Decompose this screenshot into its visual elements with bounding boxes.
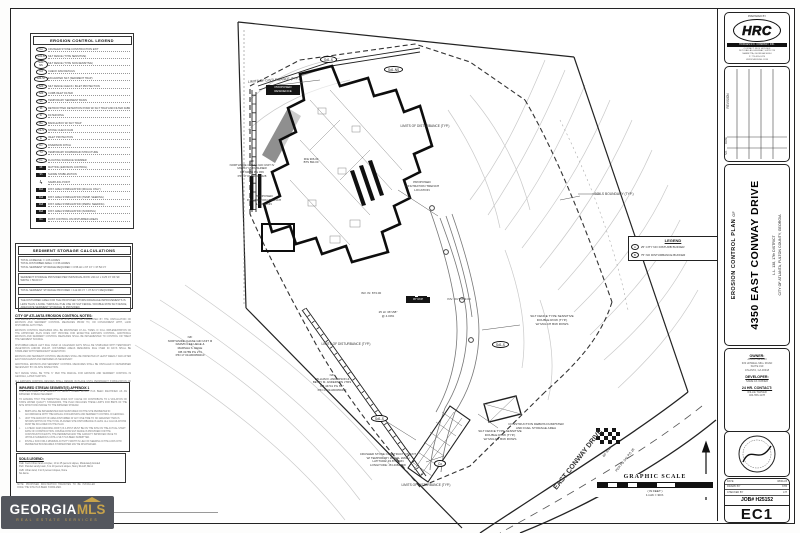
buffer-desc: 75' NO DISTURBANCE BUFFER xyxy=(641,253,685,257)
plan-label: CRUSHED STONE CONSTRUCTION EXIT W/ TEMPO… xyxy=(350,453,426,468)
info-value: 08/01/23 xyxy=(777,480,787,483)
legend-symbol: Ba xyxy=(34,121,48,127)
legend-symbol: Ds4 xyxy=(34,210,48,214)
item-text: INSTALL SOD FOR A MINIMUM ACTIVITY WIDTH… xyxy=(25,441,127,447)
legend-item: RtRETROFITTED DETENTION POND W/ SILT TRA… xyxy=(31,105,133,112)
plan-label: PROPOSED RESIDENCE xyxy=(266,85,300,95)
impaired-item: b.UNIT THE AMOUNT OF AREA DISTURBED AT A… xyxy=(19,418,127,427)
mls-tagline: REAL ESTATE SERVICES xyxy=(16,518,98,522)
erosion-note: EROSION AND SEDIMENT CONTROL MEASURES SH… xyxy=(15,356,131,362)
sq-symbol: Ds4 xyxy=(36,210,46,214)
project-title-block: EROSION CONTROL PLAN OF 4350 EAST CONWAY… xyxy=(724,164,790,346)
sediment-calc-row: TOTAL ACREAGE: ± 1.06 ACRESTOTAL DISTURB… xyxy=(18,256,131,272)
legend-item: Ck-SSTONE CHECK DAM xyxy=(31,127,133,134)
building-footprint xyxy=(262,66,432,262)
legend-item: Ds3DIST. AREA STABILIZATION (PERM. SEEDI… xyxy=(31,201,133,208)
buffer-row: B75' NO DISTURBANCE BUFFER xyxy=(631,252,715,258)
legend-desc: CHECK DAM DETAILS xyxy=(48,70,130,74)
scale-ratio: 1 inch = 30 ft. xyxy=(596,493,714,497)
sediment-calc-row: SEDIMENT STORAGE PROVIDED PER INDIVIDUAL… xyxy=(18,273,131,285)
oval-symbol: Cd xyxy=(36,69,47,75)
soils-boundary-line xyxy=(560,120,628,310)
legend-symbol: ϟ xyxy=(34,180,48,186)
legend-desc: CRUSHED STONE CONSTRUCTION EXIT xyxy=(48,48,130,52)
revision-block: REVISION DATE NO. xyxy=(724,66,790,162)
sediment-line: THE DISTURBED AREA FOR THE PROPOSED STOR… xyxy=(21,299,128,310)
scale-segment xyxy=(628,482,638,488)
sediment-line: TOTAL SEDIMENT STORAGE PROVIDED = 112.00… xyxy=(21,289,128,293)
bolt-symbol: ϟ xyxy=(40,180,43,186)
site-plan-sheet: { "colors": {"accent_gold": "#c7a34b", "… xyxy=(0,0,800,533)
dumpster-area xyxy=(484,396,521,422)
signature xyxy=(743,446,771,462)
firm-line: WWW.HRCENG.COM xyxy=(725,59,789,62)
project-city: CITY OF ATLANTA, FULTON COUNTY, GEORGIA xyxy=(778,214,783,295)
oval-symbol: Co xyxy=(36,47,47,53)
owner-developer-block: OWNER: ATBOF DESIGN333 HOWELL MILL ROADS… xyxy=(724,348,790,432)
oval-symbol: Fs xyxy=(36,158,47,164)
sq-symbol: Ds2 xyxy=(36,196,46,200)
legend-item: DvDIVERSION DITCH xyxy=(31,142,133,149)
soil-line: No dams. xyxy=(19,472,123,475)
info-value: JJT xyxy=(783,491,787,494)
plan-label: LIMITS OF DISTURBANCE (TYP.) xyxy=(388,483,464,487)
legend-desc: SILT FENCE CHECK / INLET PROTECTION xyxy=(48,85,130,89)
graphic-scale-title: GRAPHIC SCALE xyxy=(596,474,714,480)
legend-item: Ds2DIST. AREA STABILIZATION (TEMP. SEEDI… xyxy=(31,194,133,201)
sq-symbol: Ds3 xyxy=(36,203,46,207)
legend-item: ShSHORE STABILIZATION xyxy=(31,172,133,179)
legend-item: ϟSAMPLING POINT xyxy=(31,179,133,186)
georgia-mls-logo: GEORGIAMLS REAL ESTATE SERVICES xyxy=(1,496,114,529)
bmp-code-oval: Sd1-NS xyxy=(384,66,403,73)
firm-contact-lines: CONTACT: RICK HODGES2470 DALLAS HIGHWAY,… xyxy=(725,48,789,63)
legend-symbol: Dv xyxy=(34,143,48,149)
legend-symbol: Sh xyxy=(34,173,48,177)
scale-segment xyxy=(597,482,608,488)
atlanta-erosion-notes: CITY OF ATLANTA EROSION CONTROL NOTES: T… xyxy=(15,312,131,389)
buffer-row: A25' CITY NO DISTURB BUFFER xyxy=(631,244,715,250)
legend-symbol: Sd2-ST xyxy=(34,76,48,82)
legend-desc: SILT FENCE (TYPE NON-SENSITIVE) xyxy=(48,62,130,66)
legend-symbol: Du xyxy=(34,218,48,222)
project-title: 4350 EAST CONWAY DRIVE xyxy=(749,180,761,329)
plan-label: N/F NORTHSIDE CHASE GID UNIT IV MARCY M.… xyxy=(220,160,284,178)
job-info-block: DATE08/01/23DRAWN BYKTBCHECKED BYJJT JOB… xyxy=(724,478,790,523)
sq-symbol: Ds1 xyxy=(36,188,46,192)
buffer-legend-title: LEGEND xyxy=(631,238,715,243)
contact-lines: WILLIE TARVER404-556-1178 xyxy=(725,391,789,398)
buffer-desc: 25' CITY NO DISTURB BUFFER xyxy=(641,245,685,249)
item-text: UNIT THE AMOUNT OF AREA DISTURBED AT ANY… xyxy=(25,418,127,427)
impaired-item: d.INSTALL SOD FOR A MINIMUM ACTIVITY WID… xyxy=(19,441,127,447)
preparer-block: PREPARED BY HRC HODGES R.C. COMPANY, INC… xyxy=(724,12,790,64)
legend-item: CdCHECK DAM DETAILS xyxy=(31,68,133,75)
legend-desc: INLET PROTECTION xyxy=(48,136,130,140)
item-text: A CHECK DAM (DRAINING FIRST) IS A POST M… xyxy=(25,428,127,440)
owner-lines: ATBOF DESIGN333 HOWELL MILL ROADSUITE 31… xyxy=(725,358,789,372)
sq-symbol: Sh xyxy=(36,173,46,177)
bmp-code-oval: Co xyxy=(434,460,446,467)
revision-label: REVISION xyxy=(726,91,730,111)
impaired-item: c.A CHECK DAM (DRAINING FIRST) IS A POST… xyxy=(19,428,127,440)
legend-item: TdTEMPORARY DOWNDRAIN STRUCTURE xyxy=(31,149,133,156)
impaired-title: IMPAIRED STREAM SEGMENT(S) APPENDIX 1 xyxy=(19,386,127,390)
plan-label: SILT FENCE TYPE SENSITIVE DOUBLE ROW (TY… xyxy=(520,315,584,327)
legend-desc: TEMPORARY DOWNDRAIN STRUCTURE xyxy=(48,151,130,155)
job-number: JOB# H25152 xyxy=(725,496,789,505)
oval-symbol: Ip xyxy=(36,136,47,142)
hrc-logo: HRC xyxy=(733,19,781,42)
legend-desc: EXCAVATED SILT (SEDIMENT TRAP) xyxy=(48,77,130,81)
info-value: KTB xyxy=(782,485,787,488)
legend-symbol: Co xyxy=(34,47,48,53)
legend-desc: FLOATING SURFACE SKIMMER xyxy=(48,159,130,163)
legend-item: Sd3SILT FENCE CHECK / INLET PROTECTION xyxy=(31,83,133,90)
firm-company: HODGES R.C. COMPANY, INC. xyxy=(727,43,787,47)
sediment-calc-row: TOTAL SEDIMENT STORAGE PROVIDED = 112.00… xyxy=(18,287,131,296)
plan-label: LIMITS OF DISTURBANCE (TYP.) xyxy=(310,342,382,346)
legend-item: Sd2-STEXCAVATED SILT (SEDIMENT TRAP) xyxy=(31,76,133,83)
sediment-line: TOTAL SEDIMENT STORAGE REQUIRED = 0.56 A… xyxy=(21,266,128,270)
legend-symbol: Sd1-NS xyxy=(34,60,48,69)
revision-date-label: DATE xyxy=(725,137,728,144)
plan-label: SILT FENCE TYPE SENSITIVE DOUBLE ROW (TY… xyxy=(468,430,532,442)
revision-no-label: NO. xyxy=(725,150,728,155)
erosion-note: ADDITIONAL EROSION AND SEDIMENT CONTROL … xyxy=(15,364,131,370)
sediment-calc-row: THE DISTURBED AREA FOR THE PROPOSED STOR… xyxy=(18,297,131,313)
sq-symbol: Mt xyxy=(36,166,46,170)
watermark-rule xyxy=(114,512,218,513)
oval-symbol: Rt xyxy=(36,106,47,112)
plan-label: SOILS BOUNDARY (TYP.) xyxy=(578,192,650,196)
legend-symbol: Ds1 xyxy=(34,188,48,192)
plan-label: LIMITS OF DISTURBANCE (TYP.) xyxy=(392,124,458,128)
prepared-by-label: PREPARED BY xyxy=(725,15,789,18)
roof-icon xyxy=(83,497,101,502)
scale-bar xyxy=(596,482,714,488)
buffer-code: B xyxy=(631,252,639,258)
info-label: DRAWN BY xyxy=(727,485,740,488)
bmp-code-oval: Sd1-S xyxy=(371,415,388,422)
sq-symbol: Du xyxy=(36,218,46,222)
oval-symbol: Td xyxy=(36,150,47,156)
buffer-code: A xyxy=(631,244,639,250)
bmp-code-oval: Sd1-S xyxy=(320,56,337,63)
developer-lines: SAME AS OWNER xyxy=(725,380,789,384)
legend-item: Ds4DIST. AREA STABILIZATION (SODDING) xyxy=(31,209,133,216)
legend-item: BaBAFFLE BOX W/ SILT TRAP xyxy=(31,120,133,127)
erosion-note: THE ESCAPE OF SEDIMENT FROM THE SITE SHA… xyxy=(15,319,131,328)
legend-desc: BAFFLE BOX W/ SILT TRAP xyxy=(48,122,130,126)
legend-symbol: Fs xyxy=(34,158,48,164)
scale-segment xyxy=(608,482,618,488)
scale-segment xyxy=(638,482,657,488)
hrc-logo-text: HRC xyxy=(742,23,772,38)
oval-symbol: Sd4 xyxy=(36,91,47,97)
scale-segment xyxy=(676,482,713,488)
erosion-note: SILT FENCE SHALL BE TYPE 'C' PER THE MAN… xyxy=(15,373,131,379)
legend-desc: SILT FENCE (TYPE SENSITIVE) xyxy=(48,55,130,59)
erosion-note: EROSION CONTROL MEASURES WILL BE MAINTAI… xyxy=(15,330,131,342)
oval-symbol: Fr xyxy=(36,113,47,119)
impaired-item: a.BMPS WILL BE IMPLEMENTED AND MAINTAINE… xyxy=(19,411,127,417)
legend-items: CoCRUSHED STONE CONSTRUCTION EXITSd1-SSI… xyxy=(31,46,133,223)
legend-symbol: Sd3 xyxy=(34,84,48,90)
oval-symbol: Ck-S xyxy=(36,128,47,134)
developer-line: SAME AS OWNER xyxy=(725,380,789,384)
legend-symbol: Td xyxy=(34,150,48,156)
sediment-storage-calculations: SEDIMENT STORAGE CALCULATIONS TOTAL ACRE… xyxy=(15,243,133,309)
legend-item: CoCRUSHED STONE CONSTRUCTION EXIT xyxy=(31,46,133,53)
plan-label: N/F NORTHSIDE CHASE GID UNIT III DARVIN … xyxy=(156,336,224,358)
legend-desc: CURB INLET FILTER xyxy=(48,92,130,96)
plan-of: OF xyxy=(732,211,736,217)
legend-symbol: Ck-S xyxy=(34,128,48,134)
legend-desc: SAMPLING POINT xyxy=(48,181,130,185)
oval-symbol: Sb xyxy=(36,99,47,105)
scale-segment xyxy=(618,482,628,488)
graphic-scale: GRAPHIC SCALE ( IN FEET ) 1 inch = 30 ft… xyxy=(596,474,714,497)
legend-item: MtMATTING (EROSION CONTROL) xyxy=(31,164,133,171)
legend-item: DuDUST CONTROL ON DISTURBED AREAS xyxy=(31,216,133,223)
legend-desc: DIST. AREA STABILIZATION (MULCH ONLY) xyxy=(48,188,130,192)
legend-item: FsFLOATING SURFACE SKIMMER xyxy=(31,157,133,164)
plan-label: INV. IN: 873.00 xyxy=(350,292,392,296)
plan-label: 25 LF 36"x58" @ 4.00% xyxy=(370,311,406,319)
impaired-intro: TO ENSURE THAT THE PERMITTEE DOES NOT CA… xyxy=(19,399,127,408)
legend-symbol: Ds2 xyxy=(34,196,48,200)
legend-symbol: Ip xyxy=(34,136,48,142)
sheet-number: EC1 xyxy=(725,505,789,523)
mls-text: MLS xyxy=(77,503,106,517)
legend-symbol: Cd xyxy=(34,69,48,75)
construction-exit xyxy=(408,406,470,482)
legend-symbol: Sb xyxy=(34,99,48,105)
owner-line: ATLANTA, GA 30318 xyxy=(725,369,789,373)
scale-segment xyxy=(657,482,676,488)
georgia-text: GEORGIA xyxy=(10,503,77,517)
sediment-title: SEDIMENT STORAGE CALCULATIONS xyxy=(18,246,131,255)
legend-desc: DIST. AREA STABILIZATION (TEMP. SEEDING) xyxy=(48,196,130,200)
contact-line: 404-556-1178 xyxy=(725,394,789,398)
oval-symbol: Sd3 xyxy=(36,84,47,90)
legend-desc: MATTING (EROSION CONTROL) xyxy=(48,166,130,170)
legend-desc: SHORE STABILIZATION xyxy=(48,173,130,177)
legend-desc: DIST. AREA STABILIZATION (SODDING) xyxy=(48,210,130,214)
legend-symbol: Fr xyxy=(34,113,48,119)
plan-label: PROPOSED INFILTRATION TRENCH LOCATION xyxy=(243,195,285,207)
plan-label: FFE 906.00 BTS 894.00 xyxy=(296,158,326,165)
sheet: EROSION CONTROL LEGEND CoCRUSHED STONE C… xyxy=(0,0,800,533)
bmp-code-oval: Sd1-S xyxy=(492,341,509,348)
legend-item: SbTEMPORARY SEDIMENT BASIN xyxy=(31,98,133,105)
sediment-line: SEDIMENT STORAGE PROVIDED PER INDIVIDUAL… xyxy=(21,276,128,283)
oval-symbol: Sd1-NS xyxy=(34,60,48,69)
plan-label: CONSTRUCTION DEBRIS DUMPSTER AND FUEL ST… xyxy=(498,423,574,431)
storm-structures xyxy=(406,206,473,343)
erosion-note: DISTURBED AREAS LEFT IDLE OVER 14 CALEND… xyxy=(15,345,131,354)
legend-title: EROSION CONTROL LEGEND xyxy=(33,36,132,45)
erosion-control-legend: EROSION CONTROL LEGEND CoCRUSHED STONE C… xyxy=(30,33,134,229)
legend-symbol: Sd4 xyxy=(34,91,48,97)
trench-note: NOTE: PROPOSED INFILTRATION TRENCHES TO … xyxy=(17,484,95,490)
soils-legend: SOILS LEGEND: CuE: Cecil-Urban land comp… xyxy=(16,453,126,483)
revision-grid-lines xyxy=(725,67,789,161)
legend-desc: DUST CONTROL ON DISTURBED AREAS xyxy=(48,218,130,222)
impaired-intro: THE PROPOSED SITE DRAINS TO NANCY CREEK … xyxy=(19,391,127,397)
buffer-legend: LEGEND A25' CITY NO DISTURB BUFFERB75' N… xyxy=(628,236,718,261)
legend-desc: FILTER RING xyxy=(48,114,130,118)
engineer-seal xyxy=(725,432,789,476)
info-label: DATE xyxy=(727,480,733,483)
soils-title: SOILS LEGEND: xyxy=(19,457,123,461)
plan-type: EROSION CONTROL PLAN xyxy=(731,219,737,300)
legend-desc: DIST. AREA STABILIZATION (PERM. SEEDING) xyxy=(48,203,130,207)
plan-label: N/F WILLIAM F. ANDERSON & BETTY M. ANDER… xyxy=(298,374,366,392)
oval-symbol: Ba xyxy=(36,121,47,127)
legend-item: IpINLET PROTECTION xyxy=(31,135,133,142)
legend-desc: RETROFITTED DETENTION POND W/ SILT TRAP … xyxy=(48,107,130,111)
legend-item: FrFILTER RING xyxy=(31,113,133,120)
item-text: BMPS WILL BE IMPLEMENTED AND MAINTAINED … xyxy=(25,411,127,417)
legend-item: Sd4CURB INLET FILTER xyxy=(31,90,133,97)
legend-symbol: Mt xyxy=(34,166,48,170)
legend-item: Ds1DIST. AREA STABILIZATION (MULCH ONLY) xyxy=(31,186,133,193)
legend-symbol: Ds3 xyxy=(34,203,48,207)
plan-label: PROPOSED INFILTRATION TRENCH LOCATION xyxy=(398,181,446,193)
plan-label: 36" RCP xyxy=(406,297,430,303)
plan-label: INV. OUT: 873.00 xyxy=(436,298,482,302)
oval-symbol: Sd2-ST xyxy=(34,76,48,82)
legend-symbol: Rt xyxy=(34,106,48,112)
legend-desc: STONE CHECK DAM xyxy=(48,129,130,133)
legend-desc: DIVERSION DITCH xyxy=(48,144,130,148)
legend-desc: TEMPORARY SEDIMENT BASIN xyxy=(48,99,130,103)
legend-item: Sd1-NSSILT FENCE (TYPE NON-SENSITIVE) xyxy=(31,61,133,68)
info-label: CHECKED BY xyxy=(727,491,743,494)
seal-block xyxy=(724,431,790,477)
impaired-stream-appendix: IMPAIRED STREAM SEGMENT(S) APPENDIX 1 TH… xyxy=(16,382,130,452)
notes-title: CITY OF ATLANTA EROSION CONTROL NOTES: xyxy=(15,314,131,318)
oval-symbol: Dv xyxy=(36,143,47,149)
